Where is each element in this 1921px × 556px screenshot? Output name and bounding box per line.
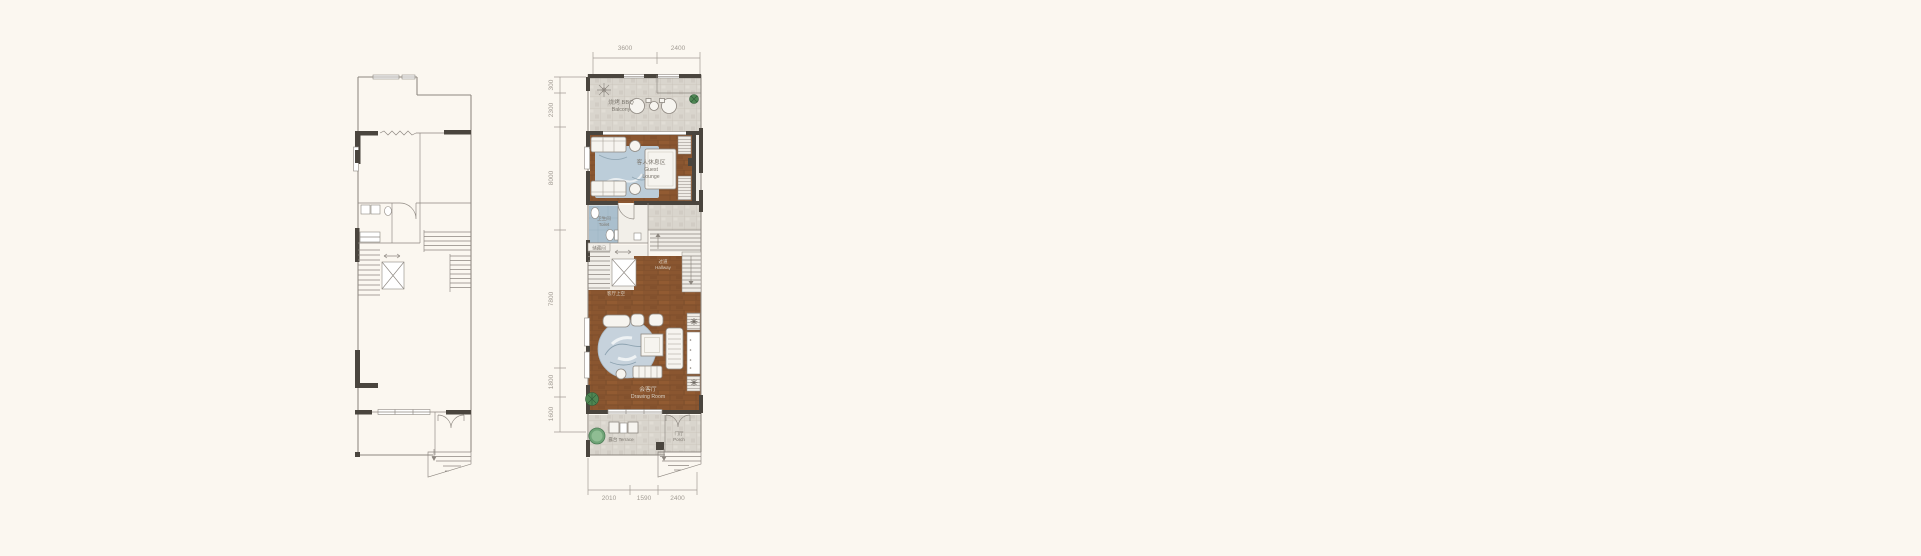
toilet-icon bbox=[606, 230, 614, 241]
room-label-hallway-en: Hallway bbox=[655, 265, 672, 270]
sink-icon bbox=[371, 205, 380, 214]
floor-drain bbox=[634, 233, 641, 240]
room-label-terrace: 露台 Terrace bbox=[608, 436, 634, 443]
room-label-toilet-en: Toilet bbox=[599, 222, 610, 227]
ceiling-fan-icon bbox=[597, 83, 611, 97]
room-label-toilet-zh: 卫生间 bbox=[597, 215, 611, 222]
wall-pier bbox=[355, 383, 378, 388]
window bbox=[585, 352, 590, 378]
wall-pier bbox=[355, 452, 360, 457]
floor-plan-canvas: 烧烤 BBQ Balcony 客人休息区 Guest Lounge 卫生间 To… bbox=[0, 0, 1921, 556]
window bbox=[585, 318, 590, 346]
dim-label: 2400 bbox=[670, 495, 685, 502]
plant-icon bbox=[586, 393, 599, 406]
stool bbox=[630, 141, 641, 152]
dim-label: 3600 bbox=[618, 45, 633, 52]
room-label-hallway-zh: 过道 bbox=[659, 258, 668, 265]
room-label-drawing-room-en: Drawing Room bbox=[631, 394, 665, 400]
window-glazing-line bbox=[380, 131, 444, 135]
armchair bbox=[649, 314, 663, 326]
cabinet bbox=[687, 313, 700, 391]
wall-pier bbox=[446, 410, 471, 415]
wall-pier bbox=[355, 410, 372, 415]
stool bbox=[630, 184, 641, 195]
dim-label: 1600 bbox=[548, 406, 555, 421]
sink-icon bbox=[361, 205, 370, 214]
dim-label: 2400 bbox=[671, 45, 686, 52]
sofa bbox=[591, 181, 626, 196]
room-label-bbq-balcony-en: Balcony bbox=[612, 107, 631, 113]
room-label-guest-lounge-en1: Guest bbox=[644, 167, 658, 173]
structural-floor-plan bbox=[354, 75, 472, 477]
wall-pier bbox=[355, 228, 360, 262]
room-label-bbq-balcony-zh: 烧烤 BBQ bbox=[608, 98, 634, 106]
double-door bbox=[438, 415, 464, 428]
dim-label: 300 bbox=[548, 79, 555, 90]
wall-pier bbox=[444, 130, 471, 135]
room-bbq-balcony bbox=[590, 77, 701, 132]
room-label-guest-lounge-zh: 客人休息区 bbox=[637, 158, 666, 166]
room-label-porch-en: Porch bbox=[673, 437, 685, 442]
entry-steps bbox=[428, 452, 471, 477]
window bbox=[373, 75, 415, 79]
chaise bbox=[603, 315, 630, 327]
plant-icon bbox=[690, 95, 699, 104]
door-mat bbox=[656, 442, 664, 450]
bench bbox=[633, 366, 662, 378]
dining-set bbox=[609, 422, 638, 433]
dimension-bottom: 2010 1590 2400 bbox=[588, 458, 697, 502]
dimension-top: 3600 2400 bbox=[593, 45, 700, 74]
wall-pier bbox=[355, 350, 360, 387]
dim-label: 8000 bbox=[548, 170, 555, 185]
sofa bbox=[666, 328, 683, 369]
dim-label: 1800 bbox=[548, 374, 555, 389]
direction-arrow bbox=[662, 457, 667, 462]
dim-label: 2300 bbox=[548, 102, 555, 117]
furnished-floor-plan: 烧烤 BBQ Balcony 客人休息区 Guest Lounge 卫生间 To… bbox=[548, 45, 703, 502]
staircase bbox=[358, 250, 380, 295]
coffee-table bbox=[641, 334, 663, 356]
stool bbox=[616, 369, 626, 379]
armchair bbox=[631, 314, 644, 326]
room-label-guest-lounge-en2: Lounge bbox=[642, 174, 659, 180]
interior-partition bbox=[358, 133, 471, 243]
dim-label: 1590 bbox=[637, 495, 652, 502]
window bbox=[585, 147, 590, 169]
room-label-storage: 储藏间 bbox=[592, 245, 606, 252]
sofa bbox=[591, 137, 626, 152]
room-label-porch-zh: 门厅 bbox=[675, 430, 684, 437]
staircase bbox=[450, 254, 471, 292]
door-swing bbox=[400, 203, 416, 219]
dim-label: 2010 bbox=[602, 495, 617, 502]
direction-arrow bbox=[384, 254, 400, 258]
room-hallway bbox=[648, 205, 701, 230]
hot-tub bbox=[589, 428, 605, 444]
dimension-left: 300 2300 8000 7800 1800 1600 bbox=[548, 77, 586, 432]
room-label-void: 客厅上空 bbox=[607, 290, 625, 297]
dim-label: 7800 bbox=[548, 291, 555, 306]
toilet-icon bbox=[385, 207, 392, 216]
staircase bbox=[424, 230, 471, 252]
wall-pier bbox=[355, 150, 360, 163]
room-label-drawing-room-zh: 会客厅 bbox=[639, 385, 657, 393]
